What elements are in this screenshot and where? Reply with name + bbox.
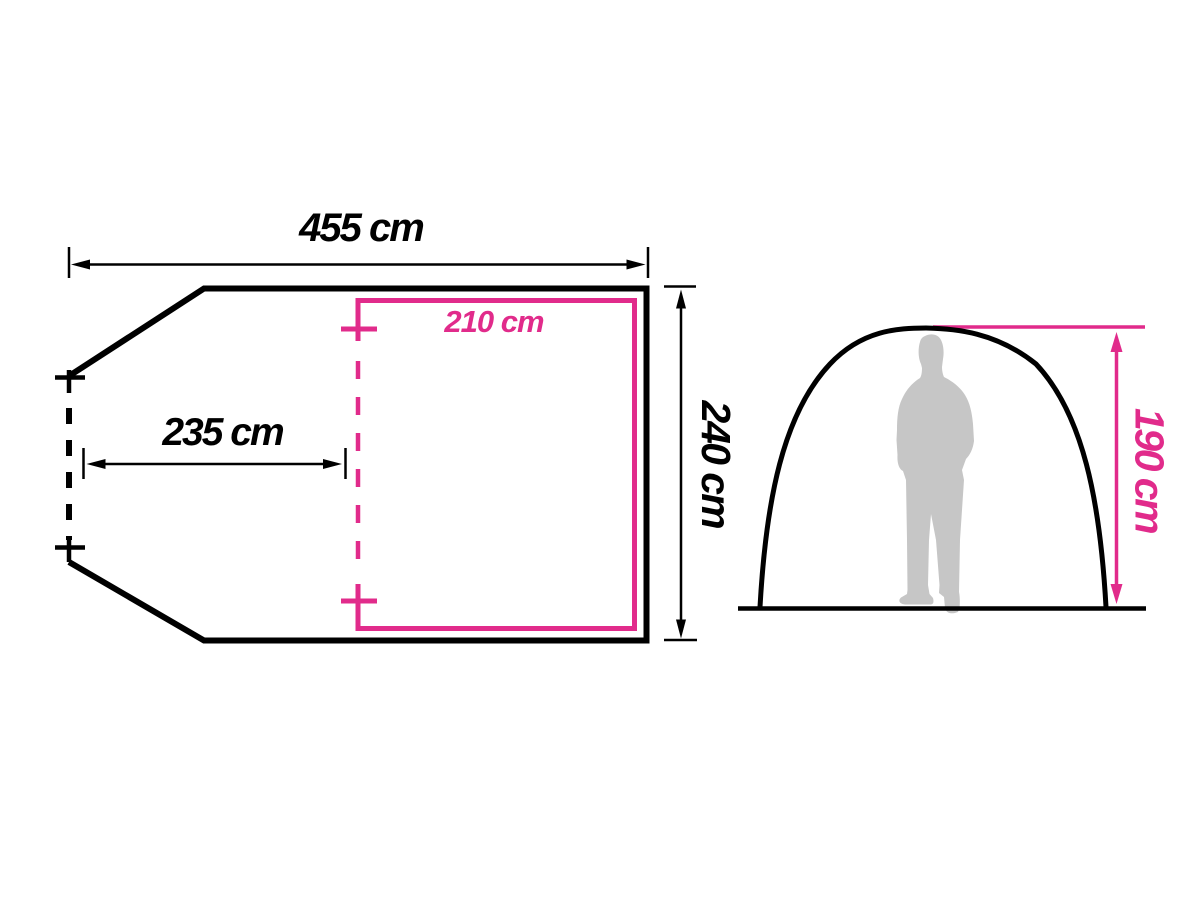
svg-text:235 cm: 235 cm xyxy=(161,411,284,454)
svg-text:210 cm: 210 cm xyxy=(443,304,544,339)
svg-text:455 cm: 455 cm xyxy=(298,206,423,250)
svg-text:190 cm: 190 cm xyxy=(1127,408,1173,533)
svg-text:240 cm: 240 cm xyxy=(693,399,739,528)
